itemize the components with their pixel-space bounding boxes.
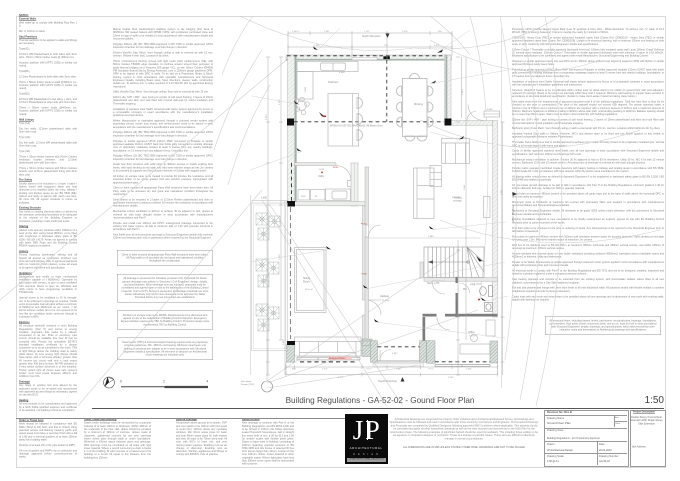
svg-text:W: W <box>315 196 318 198</box>
svg-text:Lndg. 9.07: Lndg. 9.07 <box>470 284 482 286</box>
svg-text:1,115: 1,115 <box>364 31 370 33</box>
svg-text:2,200: 2,200 <box>402 31 408 33</box>
svg-text:2.2 m2: 2.2 m2 <box>455 201 462 203</box>
svg-text:4,365: 4,365 <box>314 45 320 47</box>
svg-text:13.1 m2: 13.1 m2 <box>305 289 313 291</box>
svg-text:771.5: 771.5 <box>428 369 434 371</box>
svg-text:4,300: 4,300 <box>339 72 345 74</box>
svg-text:3,900: 3,900 <box>305 86 307 92</box>
svg-text:Dining: Dining <box>414 102 423 106</box>
svg-text:North Direction: North Direction <box>362 34 381 38</box>
svg-text:W20A (4.0 UB TO) 254x146x43 U: W20A (4.0 UB TO) 254x146x43 UB Beam Over <box>330 124 383 127</box>
svg-text:1,485: 1,485 <box>261 198 267 200</box>
svg-text:11.3 m2: 11.3 m2 <box>382 300 390 302</box>
svg-text:Site datum: Site datum <box>241 380 252 383</box>
svg-text:771.5: 771.5 <box>366 369 372 371</box>
svg-text:2,441: 2,441 <box>464 184 466 190</box>
svg-text:860: 860 <box>292 369 296 371</box>
svg-text:2,350: 2,350 <box>279 99 281 105</box>
svg-text:Stairs 1,475: Stairs 1,475 <box>427 282 440 285</box>
svg-text:FD30: FD30 <box>362 274 368 276</box>
svg-text:2,095: 2,095 <box>487 109 493 111</box>
svg-text:5,171: 5,171 <box>338 377 344 379</box>
svg-text:West Direction: West Direction <box>511 205 515 222</box>
svg-text:2,445: 2,445 <box>501 189 503 195</box>
svg-text:0: 0 <box>120 380 122 384</box>
svg-text:Room: Room <box>303 281 310 284</box>
svg-text:South Direction: South Direction <box>378 379 398 383</box>
svg-text:2,485: 2,485 <box>428 236 434 238</box>
svg-text:703.5: 703.5 <box>456 294 458 300</box>
svg-text:D/W: D/W <box>301 196 306 198</box>
svg-text:2: 2 <box>163 380 165 384</box>
svg-text:Hallway: Hallway <box>380 294 390 298</box>
svg-text:Utility: Utility <box>318 175 325 178</box>
svg-text:3,830: 3,830 <box>279 254 281 260</box>
svg-text:4: 4 <box>207 380 209 384</box>
svg-text:Designed Beam: Designed Beam <box>329 358 345 360</box>
svg-text:790: 790 <box>384 45 388 47</box>
svg-text:1,485: 1,485 <box>283 339 285 345</box>
svg-text:2,265: 2,265 <box>466 369 472 371</box>
svg-text:1,347: 1,347 <box>396 369 402 371</box>
svg-text:865: 865 <box>438 31 442 33</box>
svg-text:WC: WC <box>463 289 467 291</box>
svg-text:1,070: 1,070 <box>319 169 325 171</box>
svg-text:FD30: FD30 <box>361 224 367 226</box>
svg-text:1,061.5: 1,061.5 <box>292 31 300 33</box>
svg-text:Kitchen: Kitchen <box>328 80 339 84</box>
svg-text:7.5 m2: 7.5 m2 <box>469 336 476 338</box>
svg-text:6,830: 6,830 <box>266 114 268 120</box>
svg-text:1,347: 1,347 <box>392 353 398 355</box>
svg-text:Landing: Landing <box>454 198 463 200</box>
svg-text:4,022: 4,022 <box>434 45 440 47</box>
svg-text:2,300: 2,300 <box>462 89 464 95</box>
svg-text:Station (TBC): Station (TBC) <box>241 383 255 386</box>
svg-text:FD30: FD30 <box>333 167 339 169</box>
svg-text:2,481: 2,481 <box>324 31 330 33</box>
svg-text:1,275: 1,275 <box>322 369 328 371</box>
svg-text:3,080: 3,080 <box>448 377 454 379</box>
